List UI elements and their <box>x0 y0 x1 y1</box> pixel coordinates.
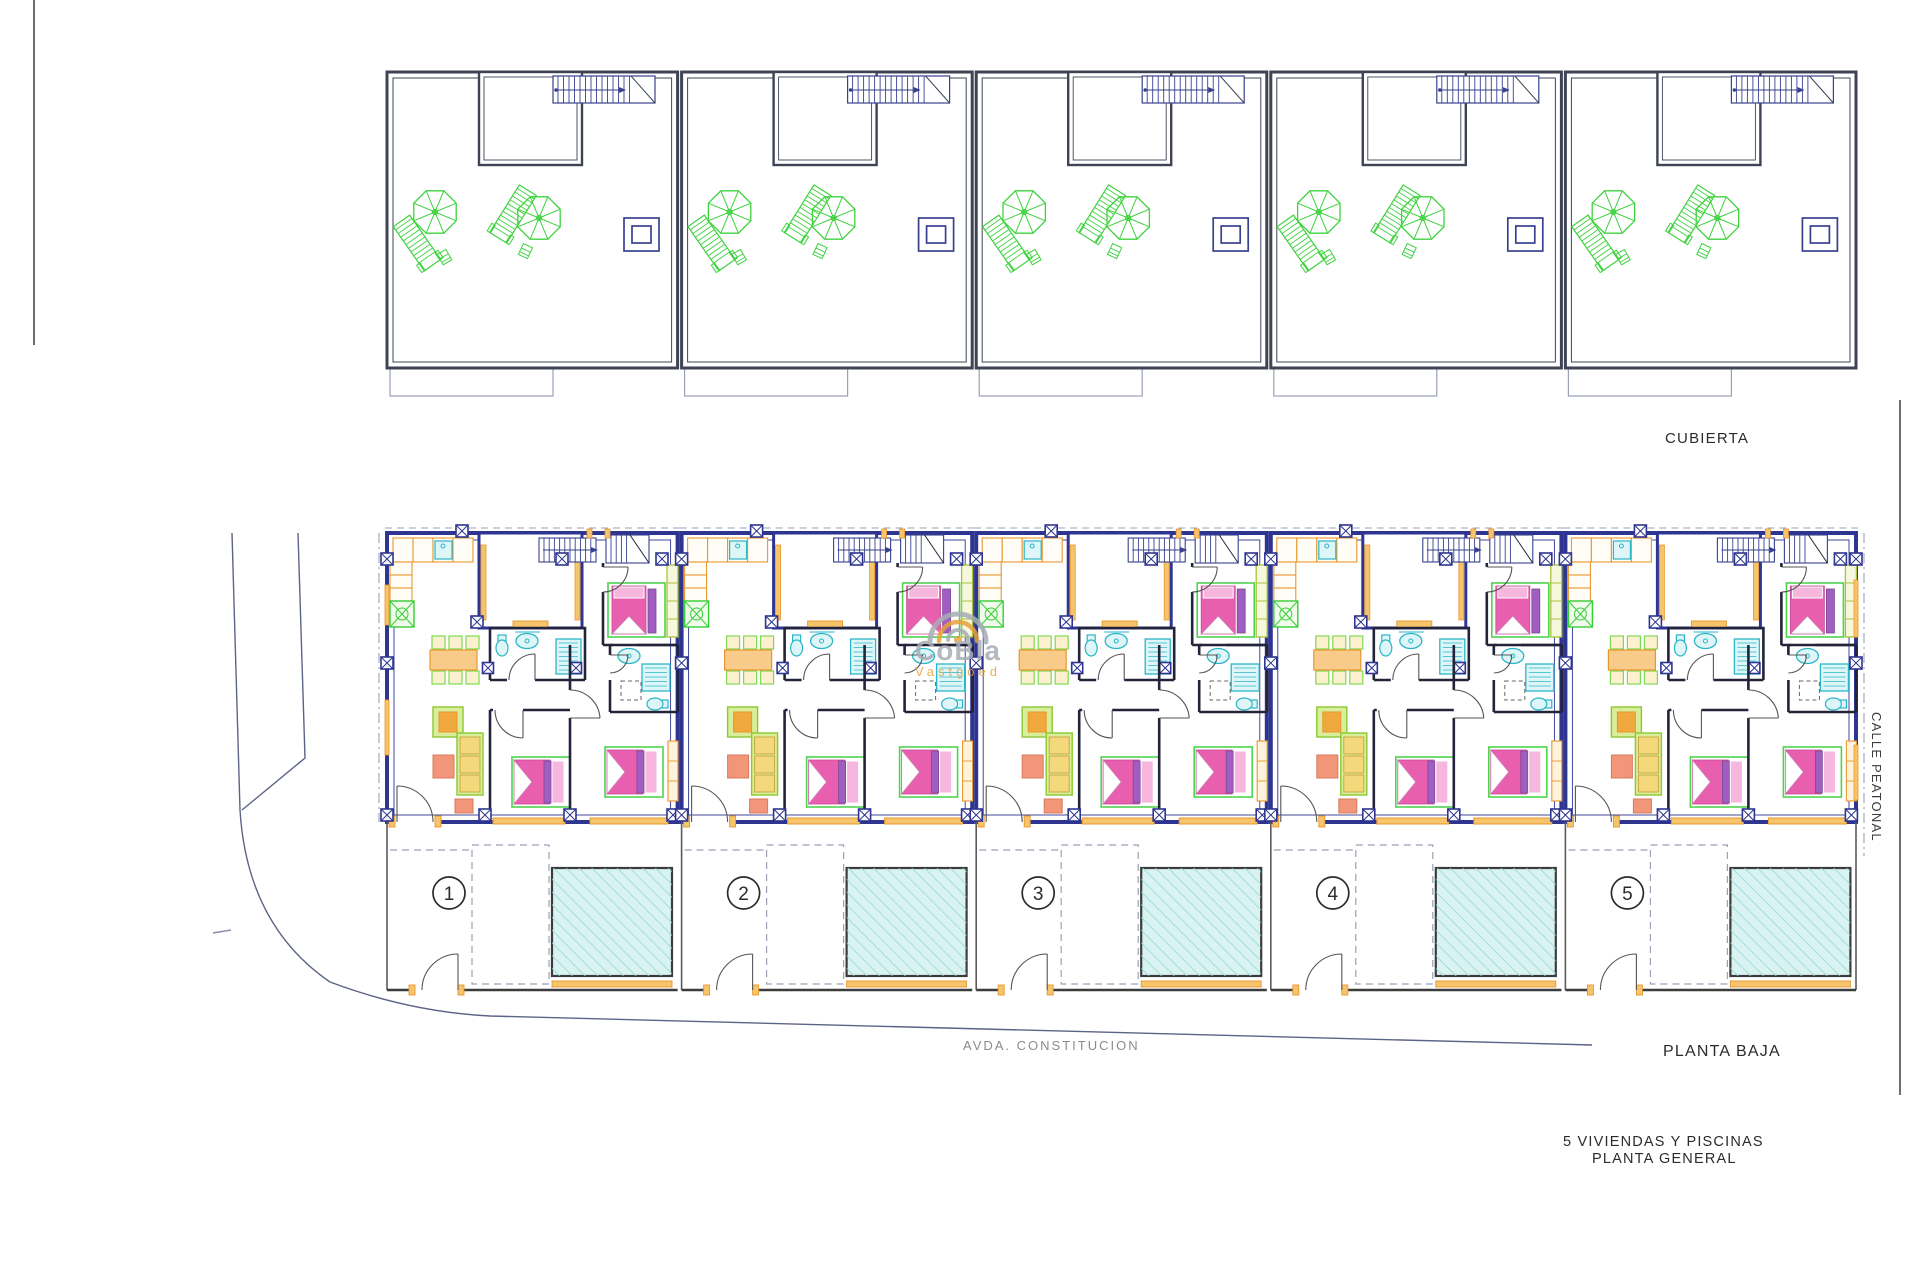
bed-icon <box>1194 747 1252 797</box>
dining-set <box>1314 636 1363 684</box>
dining-set <box>1019 636 1068 684</box>
unit-number: 4 <box>1328 884 1339 905</box>
door-opening <box>690 817 730 826</box>
bed-icon <box>1690 757 1748 807</box>
sink-icon <box>1207 649 1229 664</box>
shower-icon <box>1231 664 1259 691</box>
sliding-door-sill <box>1082 818 1154 824</box>
sliding-door-sill <box>590 818 668 824</box>
swimming-pool <box>1730 868 1850 976</box>
unit-number: 5 <box>1622 884 1633 905</box>
coffee-table-icon <box>1611 755 1632 778</box>
unit-number: 3 <box>1033 884 1044 905</box>
roof-unit <box>976 72 1267 396</box>
toilet-icon <box>791 635 803 656</box>
door-opening <box>395 817 435 826</box>
wardrobe <box>963 741 973 801</box>
sink-icon <box>1105 634 1127 649</box>
watermark-line1: CoBla <box>915 635 1001 666</box>
roof-unit <box>387 72 678 396</box>
roof-stairs <box>1731 76 1833 103</box>
roof-stairs <box>553 76 655 103</box>
plant-icon <box>979 601 1003 627</box>
sink-icon <box>1796 649 1818 664</box>
pool-step <box>1730 981 1850 987</box>
wardrobe <box>1257 741 1267 801</box>
roof-unit <box>1271 72 1562 396</box>
toilet-icon <box>1531 698 1552 710</box>
skylight <box>1802 218 1837 251</box>
plant-icon <box>1274 601 1298 627</box>
sliding-door-sill <box>788 818 860 824</box>
toilet-icon <box>1674 635 1686 656</box>
shower-icon <box>1526 664 1554 691</box>
label-project-line2: PLANTA GENERAL <box>1592 1151 1737 1167</box>
watermark-line2: Vastgoed <box>915 664 1001 679</box>
sliding-door-sill <box>1474 818 1552 824</box>
skylight <box>1213 218 1248 251</box>
bed-icon <box>1492 583 1549 637</box>
sink-icon <box>1694 634 1716 649</box>
sink-icon <box>516 634 538 649</box>
toilet-icon <box>1825 698 1846 710</box>
door-opening <box>1279 817 1319 826</box>
pool-step <box>847 981 967 987</box>
toilet-icon <box>1236 698 1257 710</box>
swimming-pool <box>552 868 672 976</box>
toilet-icon <box>496 635 508 656</box>
sliding-door-sill <box>1768 818 1846 824</box>
pool-step <box>1436 981 1556 987</box>
wardrobe <box>1552 741 1562 801</box>
sink-icon <box>1502 649 1524 664</box>
door-opening <box>984 817 1024 826</box>
roof-stairs <box>1142 76 1244 103</box>
pool-step <box>552 981 672 987</box>
shower-icon <box>642 664 670 691</box>
bed-icon <box>900 747 958 797</box>
bed-icon <box>605 747 663 797</box>
bed-icon <box>1786 583 1843 637</box>
label-cubierta: CUBIERTA <box>1665 430 1749 447</box>
roof-parapet-tab <box>1568 368 1731 396</box>
swimming-pool <box>847 868 967 976</box>
roof-stairs <box>1437 76 1539 103</box>
skylight <box>1508 218 1543 251</box>
roof-unit <box>1565 72 1856 396</box>
sink-icon <box>1400 634 1422 649</box>
bed-icon <box>807 757 865 807</box>
plant-icon <box>390 601 414 627</box>
toilet-icon <box>1085 635 1097 656</box>
roof-unit <box>682 72 973 396</box>
roof-stairs <box>848 76 950 103</box>
bed-icon <box>1396 757 1454 807</box>
bed-icon <box>512 757 570 807</box>
roof-plan-row <box>387 72 1856 396</box>
label-planta-baja: PLANTA BAJA <box>1663 1043 1781 1060</box>
shower-icon <box>1820 664 1848 691</box>
sliding-door-sill <box>1377 818 1449 824</box>
unit-number: 1 <box>444 884 455 905</box>
toilet-icon <box>942 698 963 710</box>
dining-set <box>1608 636 1657 684</box>
swimming-pool <box>1436 868 1556 976</box>
bed-icon <box>1197 583 1254 637</box>
sliding-door-sill <box>1671 818 1743 824</box>
plant-icon <box>1568 601 1592 627</box>
toilet-icon <box>647 698 668 710</box>
bed-icon <box>1489 747 1547 797</box>
sliding-door-sill <box>493 818 565 824</box>
sink-icon <box>618 649 640 664</box>
door-opening <box>1573 817 1613 826</box>
roof-parapet-tab <box>390 368 553 396</box>
swimming-pool <box>1141 868 1261 976</box>
label-project-line1: 5 VIVIENDAS Y PISCINAS <box>1563 1134 1764 1150</box>
pool-step <box>1141 981 1261 987</box>
sink-icon <box>811 634 833 649</box>
bed-icon <box>1101 757 1159 807</box>
coffee-table-icon <box>1317 755 1338 778</box>
plant-icon <box>685 601 709 627</box>
dining-set <box>725 636 774 684</box>
coffee-table-icon <box>433 755 454 778</box>
bed-icon <box>1783 747 1841 797</box>
floor-plan-canvas: 12345 CUBIERTAPLANTA BAJA5 VIVIENDAS Y P… <box>0 0 1920 1280</box>
architectural-drawing-page: 12345 CUBIERTAPLANTA BAJA5 VIVIENDAS Y P… <box>0 0 1920 1280</box>
coffee-table-icon <box>728 755 749 778</box>
roof-parapet-tab <box>685 368 848 396</box>
bed-icon <box>608 583 665 637</box>
sliding-door-sill <box>885 818 963 824</box>
toilet-icon <box>1380 635 1392 656</box>
skylight <box>919 218 954 251</box>
unit-number: 2 <box>738 884 749 905</box>
coffee-table-icon <box>1022 755 1043 778</box>
wardrobe <box>668 741 678 801</box>
dining-set <box>430 636 479 684</box>
skylight <box>624 218 659 251</box>
label-calle-peatonal: CALLE PEATONAL <box>1869 712 1884 842</box>
roof-parapet-tab <box>979 368 1142 396</box>
roof-parapet-tab <box>1274 368 1437 396</box>
sliding-door-sill <box>1179 818 1257 824</box>
